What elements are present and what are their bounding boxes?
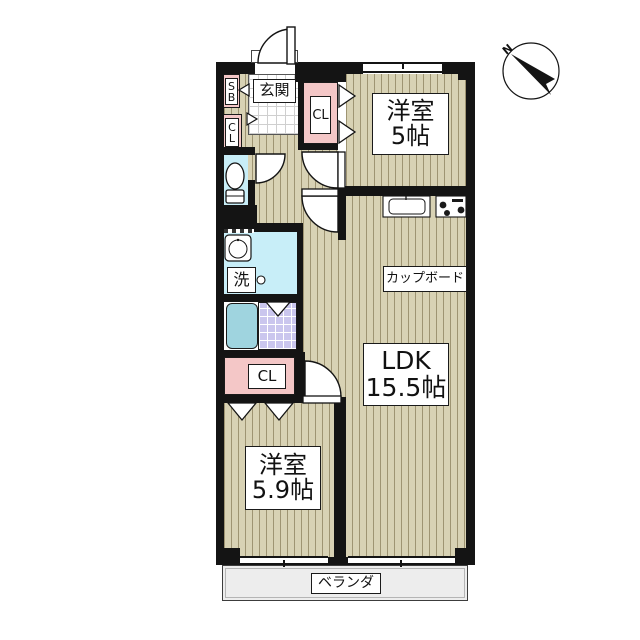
washbasin-tap-dot bbox=[237, 239, 239, 241]
kitchen-sink-basin bbox=[389, 199, 425, 214]
bedroom2-size: 5.9帖 bbox=[252, 478, 314, 503]
stove-grill-bar bbox=[452, 199, 463, 202]
hall-closet-door-triangle bbox=[247, 113, 257, 125]
bedroom2-door-arc bbox=[305, 361, 341, 397]
ldk-name: LDK bbox=[381, 348, 431, 374]
bedroom2-closet-label: CL bbox=[248, 364, 286, 389]
ldk-label: LDK 15.5帖 bbox=[363, 343, 449, 406]
washbasin-bowl bbox=[229, 240, 247, 258]
bedroom2-door-leaf bbox=[303, 396, 341, 403]
washer-tap-icon bbox=[257, 276, 265, 284]
ldk-size: 15.5帖 bbox=[366, 375, 447, 401]
ldk-door-arc bbox=[302, 196, 338, 232]
bedroom2-label: 洋室 5.9帖 bbox=[245, 446, 321, 510]
veranda-label: ベランダ bbox=[311, 573, 381, 594]
toilet-door-arc bbox=[256, 154, 285, 183]
closet-door-triangle bbox=[339, 85, 355, 107]
closet-door-triangle bbox=[265, 403, 293, 420]
toilet-bowl-icon bbox=[226, 163, 244, 189]
bedroom1-closet-label: CL bbox=[310, 96, 331, 134]
entrance-door-leaf bbox=[287, 27, 295, 64]
closet-door-triangle bbox=[339, 121, 355, 143]
bedroom1-door-leaf bbox=[338, 152, 345, 188]
washer-label: 洗 bbox=[227, 267, 256, 293]
bath-door-triangle bbox=[266, 302, 290, 316]
stove-burner bbox=[440, 202, 447, 209]
entrance-label: 玄関 bbox=[253, 79, 296, 103]
bedroom1-size: 5帖 bbox=[391, 124, 430, 149]
floor-plan: N SB CL CL 玄関 洋室 5帖 カップボード LDK 15.5帖 洗 C… bbox=[0, 0, 640, 640]
hall-closet-label: CL bbox=[225, 118, 239, 147]
ldk-door-leaf bbox=[302, 189, 338, 196]
bedroom2-name: 洋室 bbox=[259, 453, 307, 478]
closet-door-triangle bbox=[228, 403, 256, 420]
bedroom1-door-arc bbox=[302, 152, 338, 188]
shoe-box-label: SB bbox=[225, 78, 238, 105]
bedroom1-name: 洋室 bbox=[387, 99, 435, 124]
stove-burner bbox=[444, 210, 450, 216]
bedroom1-label: 洋室 5帖 bbox=[372, 93, 449, 155]
shoe-box-door-triangle bbox=[239, 84, 249, 96]
cupboard-label: カップボード bbox=[383, 266, 467, 292]
stove-burner bbox=[458, 207, 465, 214]
